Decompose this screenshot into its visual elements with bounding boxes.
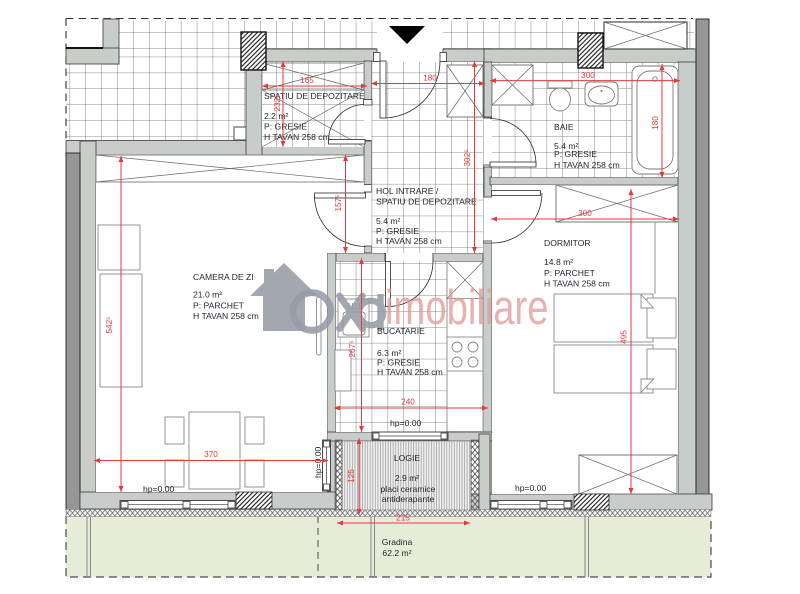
- svg-text:300: 300: [581, 71, 595, 80]
- svg-text:H TAVAN 258 cm: H TAVAN 258 cm: [544, 279, 610, 289]
- svg-text:267⁵: 267⁵: [348, 340, 357, 357]
- svg-text:370: 370: [204, 450, 218, 459]
- svg-text:placi ceramice: placi ceramice: [381, 484, 436, 494]
- svg-text:hp=0.00: hp=0.00: [143, 484, 175, 494]
- svg-text:P: PARCHET: P: PARCHET: [193, 301, 245, 311]
- svg-text:215: 215: [396, 514, 410, 523]
- svg-text:P: GRESIE: P: GRESIE: [264, 122, 307, 132]
- svg-text:BUCATARIE: BUCATARIE: [377, 326, 425, 336]
- svg-text:2.9 m²: 2.9 m²: [395, 473, 419, 483]
- svg-text:hp=0.00: hp=0.00: [515, 483, 547, 493]
- svg-text:180: 180: [651, 116, 660, 130]
- svg-text:BAIE: BAIE: [554, 122, 574, 132]
- svg-text:6.3 m²: 6.3 m²: [377, 348, 401, 358]
- svg-text:H TAVAN 258 cm: H TAVAN 258 cm: [554, 160, 620, 170]
- svg-text:125: 125: [347, 469, 356, 483]
- svg-text:hp=0.00: hp=0.00: [313, 446, 323, 478]
- svg-text:232⁵: 232⁵: [273, 94, 282, 111]
- svg-text:DORMITOR: DORMITOR: [544, 238, 591, 248]
- svg-text:H TAVAN 258 cm: H TAVAN 258 cm: [377, 367, 443, 377]
- svg-text:HOL INTRARE /: HOL INTRARE /: [376, 186, 439, 196]
- svg-text:157⁵: 157⁵: [334, 194, 343, 211]
- svg-text:SPATIU DE DEPOZITARE: SPATIU DE DEPOZITARE: [376, 197, 477, 207]
- svg-text:300: 300: [578, 209, 592, 218]
- svg-text:180: 180: [423, 74, 437, 83]
- svg-text:302⁵: 302⁵: [463, 149, 472, 166]
- svg-text:P: GRESIE: P: GRESIE: [554, 149, 597, 159]
- svg-text:495: 495: [620, 330, 629, 344]
- svg-text:LOGIE: LOGIE: [394, 453, 421, 463]
- svg-text:21.0 m²: 21.0 m²: [193, 290, 222, 300]
- svg-text:P: PARCHET: P: PARCHET: [544, 268, 596, 278]
- svg-text:240: 240: [401, 398, 415, 407]
- svg-text:P: GRESIE: P: GRESIE: [377, 358, 420, 368]
- svg-text:CAMERA DE ZI: CAMERA DE ZI: [193, 272, 254, 282]
- svg-text:hp=0.00: hp=0.00: [390, 418, 422, 428]
- svg-text:165: 165: [300, 76, 314, 85]
- svg-text:62.2 m²: 62.2 m²: [382, 548, 411, 558]
- svg-text:H TAVAN 258 cm: H TAVAN 258 cm: [193, 311, 259, 321]
- svg-text:5.4 m²: 5.4 m²: [376, 216, 400, 226]
- svg-text:antiderapante: antiderapante: [382, 494, 435, 504]
- svg-text:P: GRESIE: P: GRESIE: [376, 226, 419, 236]
- svg-text:H TAVAN 258 cm: H TAVAN 258 cm: [376, 236, 442, 246]
- svg-text:Gradina: Gradina: [382, 537, 413, 547]
- svg-text:542⁵: 542⁵: [105, 316, 114, 333]
- svg-text:H TAVAN 258 cm: H TAVAN 258 cm: [264, 132, 330, 142]
- svg-text:14.8 m²: 14.8 m²: [544, 257, 573, 267]
